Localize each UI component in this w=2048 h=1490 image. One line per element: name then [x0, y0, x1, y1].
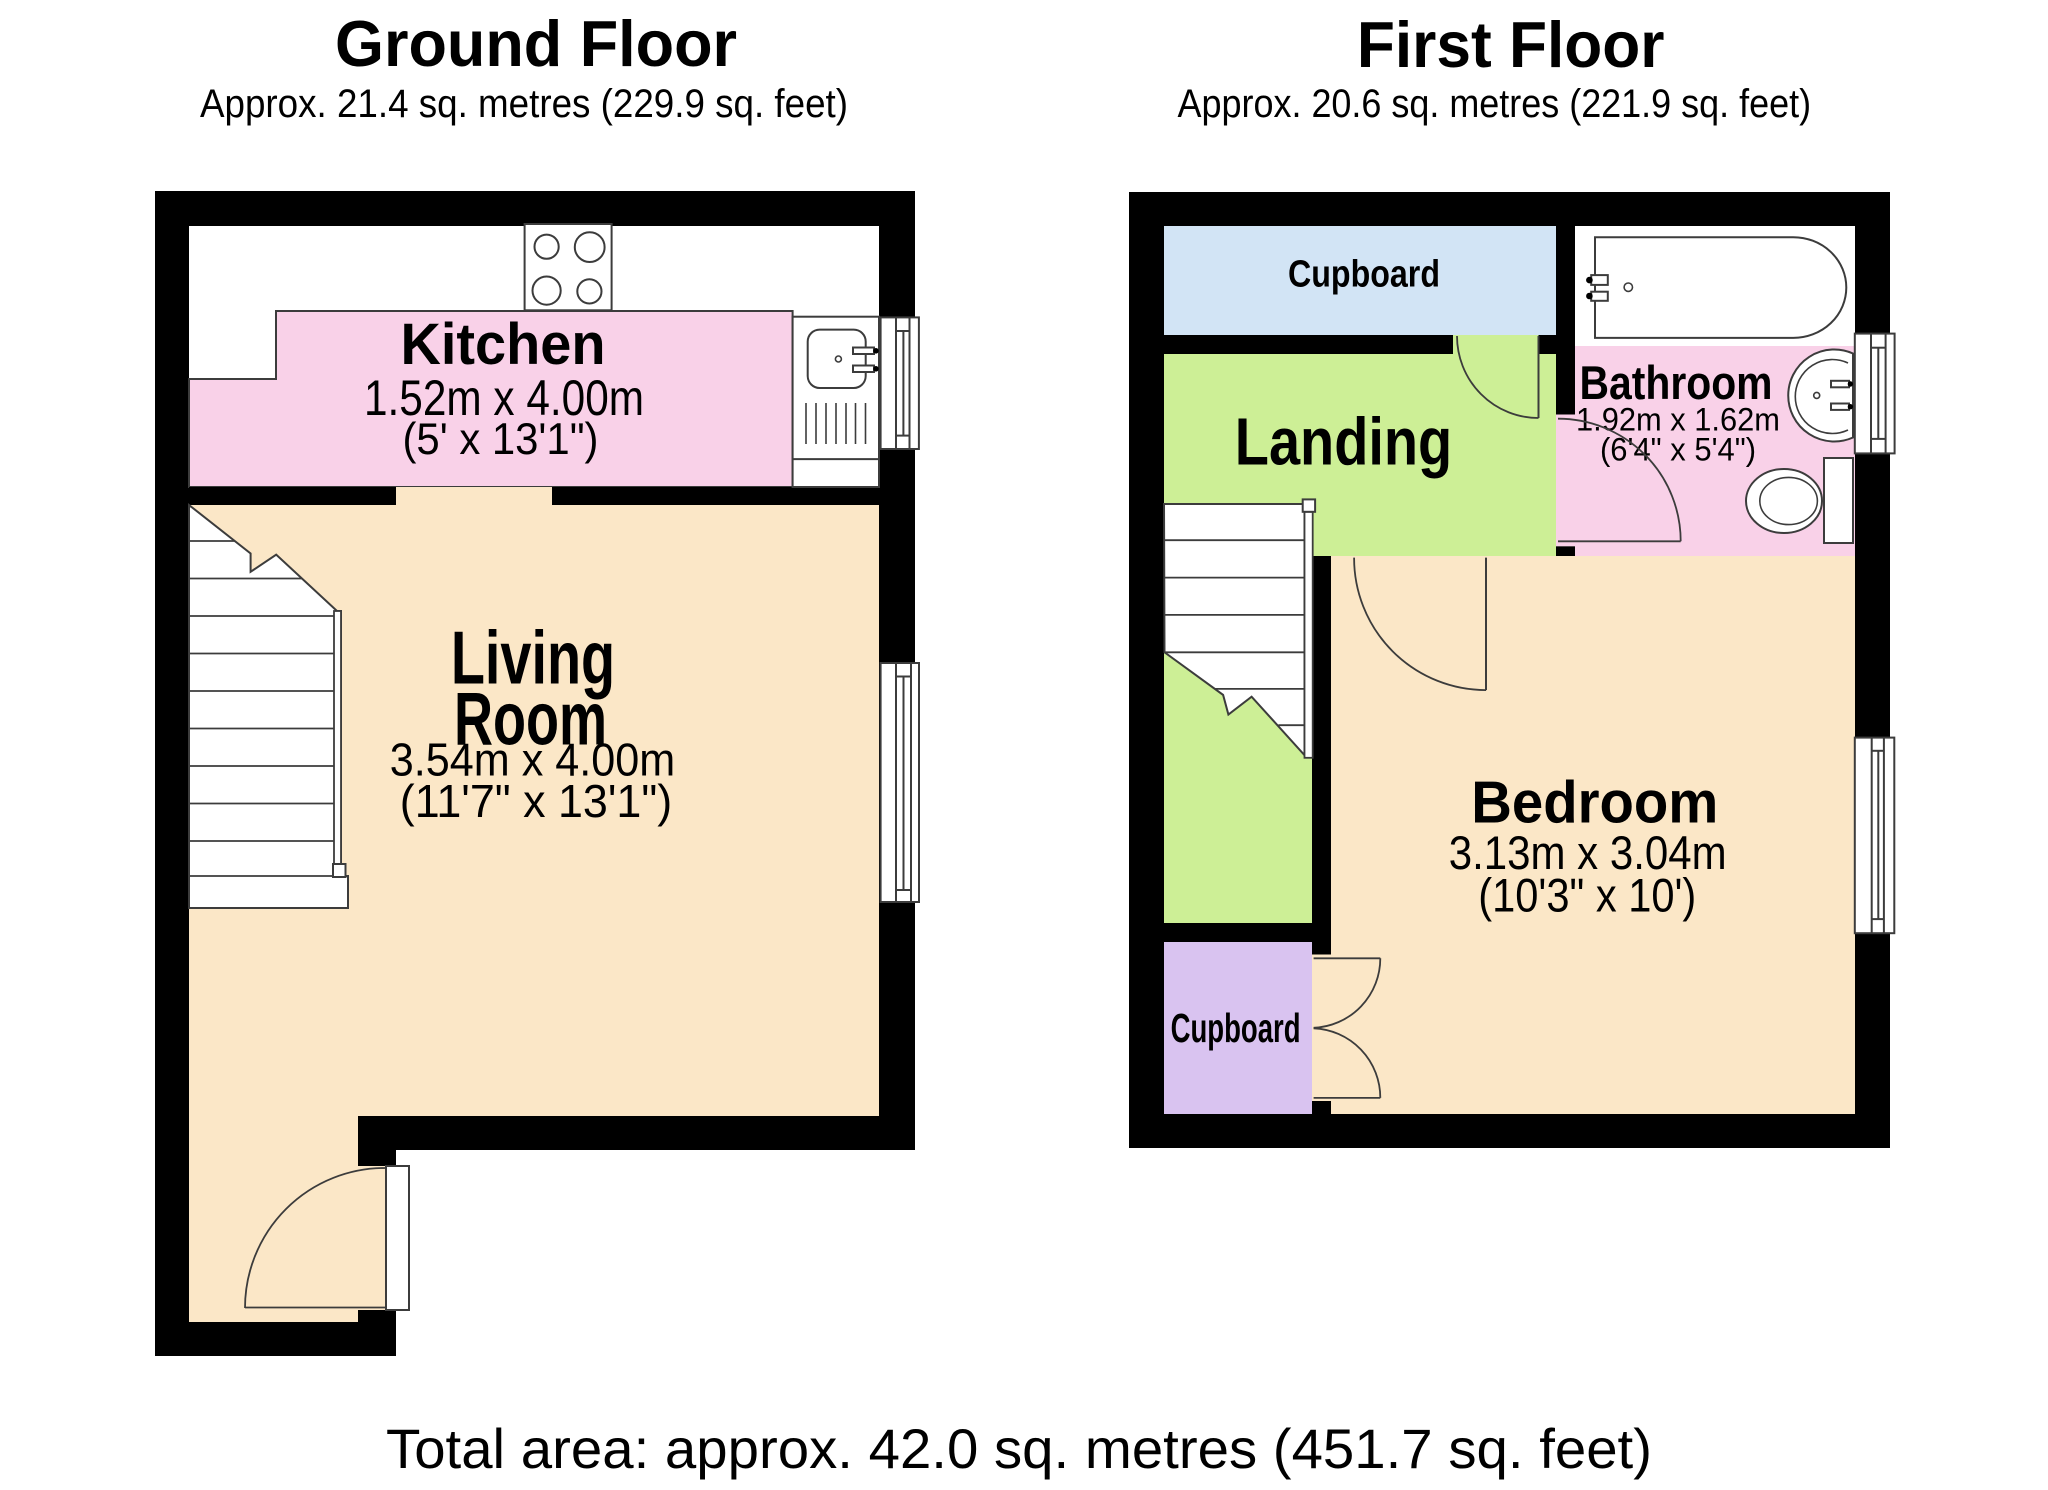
- svg-text:(10'3" x 10'): (10'3" x 10'): [1478, 869, 1696, 922]
- svg-text:Approx. 20.6 sq. metres (221.9: Approx. 20.6 sq. metres (221.9 sq. feet): [1178, 82, 1812, 126]
- svg-text:Approx. 21.4 sq. metres (229.9: Approx. 21.4 sq. metres (229.9 sq. feet): [200, 82, 848, 126]
- svg-text:First Floor: First Floor: [1357, 8, 1665, 81]
- svg-text:Ground Floor: Ground Floor: [335, 7, 737, 80]
- svg-text:Landing: Landing: [1235, 406, 1452, 480]
- svg-text:Cupboard: Cupboard: [1288, 252, 1440, 295]
- svg-text:(5' x 13'1"): (5' x 13'1"): [403, 415, 599, 464]
- svg-text:(11'7" x 13'1"): (11'7" x 13'1"): [400, 775, 672, 827]
- svg-text:Cupboard: Cupboard: [1171, 1005, 1301, 1051]
- svg-text:Total area: approx. 42.0 sq. m: Total area: approx. 42.0 sq. metres (451…: [386, 1418, 1652, 1480]
- svg-text:Kitchen: Kitchen: [401, 312, 606, 377]
